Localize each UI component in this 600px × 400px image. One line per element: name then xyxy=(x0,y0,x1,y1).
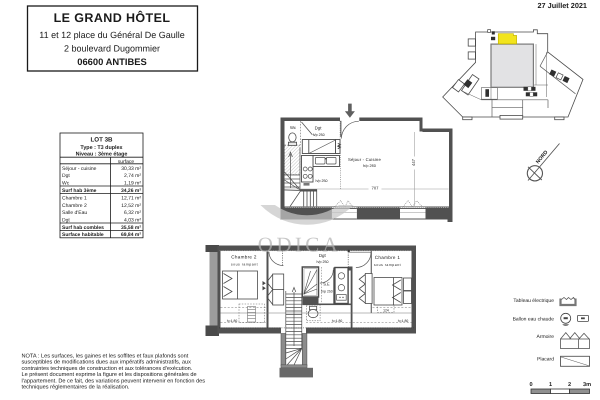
svg-text:techniques réglementaires de l: techniques réglementaires de la réalisat… xyxy=(22,384,130,391)
svg-text:Le présent document exprime: Le présent document exprime la figure et… xyxy=(22,371,197,378)
svg-text:2: 2 xyxy=(568,382,571,388)
svg-text:sous rampant: sous rampant xyxy=(374,263,401,267)
svg-text:Chambre 1: Chambre 1 xyxy=(62,195,87,201)
svg-text:Dgt: Dgt xyxy=(315,126,323,131)
svg-text:Niveau : 3ème étage: Niveau : 3ème étage xyxy=(76,152,128,158)
svg-text:69,84 m²: 69,84 m² xyxy=(121,232,141,238)
svg-text:h/p 250: h/p 250 xyxy=(316,179,328,183)
svg-text:l'appartement. De ce fait, des: l'appartement. De ce fait, des variation… xyxy=(22,377,206,384)
svg-text:Chambre 2: Chambre 2 xyxy=(62,203,87,209)
svg-text:Séjour - Cuisine: Séjour - Cuisine xyxy=(348,157,381,162)
svg-text:124: 124 xyxy=(383,309,389,313)
svg-text:12,71 m²: 12,71 m² xyxy=(121,195,141,201)
svg-text:27 Juillet 2021: 27 Juillet 2021 xyxy=(538,1,588,10)
svg-text:2 boulevard Dugommier: 2 boulevard Dugommier xyxy=(64,44,160,54)
svg-text:Dgt: Dgt xyxy=(62,173,70,179)
svg-text:sous rampant: sous rampant xyxy=(231,263,258,267)
svg-text:Chambre 2: Chambre 2 xyxy=(231,255,257,260)
svg-text:6,32 m²: 6,32 m² xyxy=(124,210,141,216)
svg-text:Surface habitable: Surface habitable xyxy=(62,232,104,238)
svg-text:0: 0 xyxy=(529,382,532,388)
svg-text:contraintes techniques de cons: contraintes techniques de construction e… xyxy=(22,365,193,372)
svg-text:Placard: Placard xyxy=(537,356,554,362)
svg-text:Séjour - cuisine: Séjour - cuisine xyxy=(62,166,97,172)
svg-text:LOT 3B: LOT 3B xyxy=(90,137,113,144)
svg-text:h/p 250: h/p 250 xyxy=(317,260,329,264)
svg-text:NOTA : Les surfaces, les: NOTA : Les surfaces, les gaines et les s… xyxy=(22,353,189,360)
svg-text:30,33 m²: 30,33 m² xyxy=(121,166,141,172)
svg-text:Chambre 1: Chambre 1 xyxy=(375,255,401,260)
svg-text:3m: 3m xyxy=(583,382,591,388)
svg-text:LE GRAND HÔTEL: LE GRAND HÔTEL xyxy=(54,10,171,25)
svg-text:Salle d'Eau: Salle d'Eau xyxy=(62,210,87,216)
svg-text:Armoire: Armoire xyxy=(536,334,554,340)
svg-text:h/p 250: h/p 250 xyxy=(321,289,332,293)
svg-text:1: 1 xyxy=(549,382,552,388)
svg-text:susceptibles de modification: susceptibles de modifications dues aux i… xyxy=(22,359,192,366)
svg-text:h=1.80: h=1.80 xyxy=(398,319,409,323)
svg-text:707: 707 xyxy=(372,185,380,190)
svg-text:Type : T3 duplex: Type : T3 duplex xyxy=(80,145,122,151)
svg-text:Wc: Wc xyxy=(290,125,296,130)
svg-text:h=1.80: h=1.80 xyxy=(332,319,343,323)
svg-text:447: 447 xyxy=(411,158,416,166)
svg-text:Tableau électrique: Tableau électrique xyxy=(513,298,554,304)
svg-text:06600 ANTIBES: 06600 ANTIBES xyxy=(77,56,146,67)
svg-text:12,52 m²: 12,52 m² xyxy=(121,203,141,209)
svg-text:2,74 m²: 2,74 m² xyxy=(124,173,141,179)
svg-text:11 et 12 place du Général De G: 11 et 12 place du Général De Gaulle xyxy=(39,30,184,40)
svg-text:ODICA: ODICA xyxy=(258,233,342,257)
svg-text:h/p 260: h/p 260 xyxy=(363,164,376,168)
svg-text:Ballon eau chaude: Ballon eau chaude xyxy=(513,316,555,322)
svg-text:h/p 250: h/p 250 xyxy=(313,133,325,137)
svg-text:h=1.80: h=1.80 xyxy=(227,319,238,323)
